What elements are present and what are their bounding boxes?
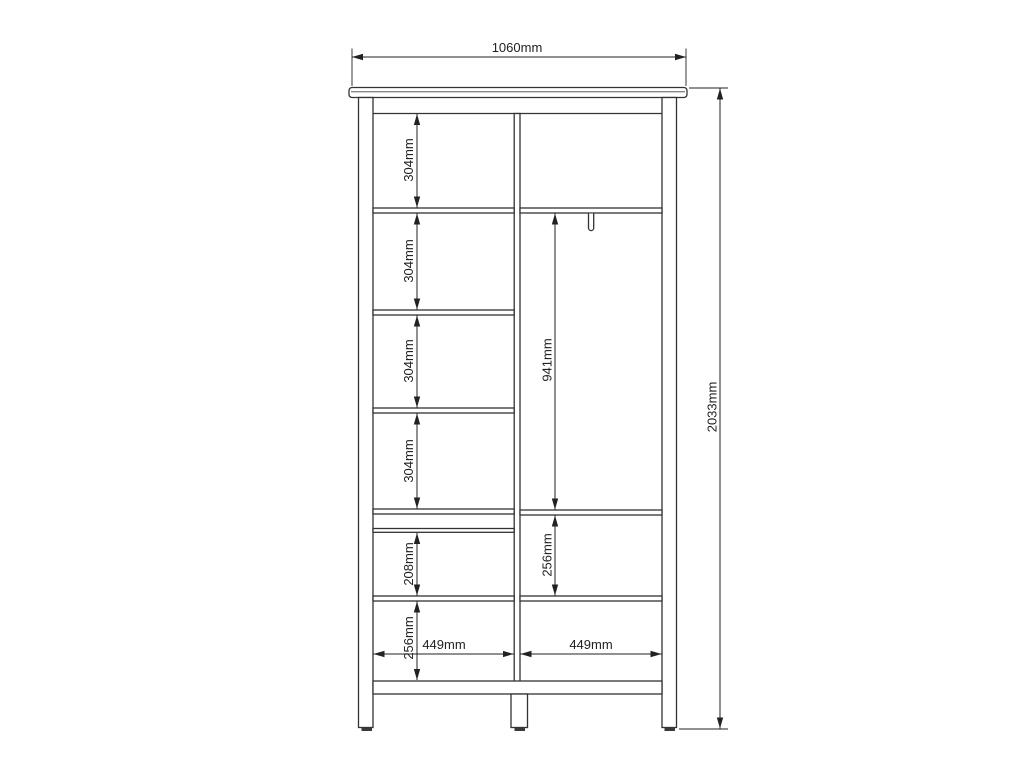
dimension-label-compartment-right: 449mm bbox=[569, 637, 612, 652]
right-side-panel bbox=[662, 98, 677, 728]
drawing-page: 1060mm 2033mm 304mm 304mm 304mm 304mm bbox=[0, 0, 1035, 776]
dimension-label-section-5: 208mm bbox=[401, 542, 416, 585]
wardrobe-structure bbox=[349, 88, 687, 732]
dimension-label-section-1: 304mm bbox=[401, 138, 416, 181]
dimension-label-overall-height: 2033mm bbox=[705, 382, 720, 433]
middle-leg bbox=[511, 694, 528, 728]
shelf-line bbox=[373, 529, 514, 533]
dimension-label-section-2: 304mm bbox=[401, 239, 416, 282]
shelf-line bbox=[520, 510, 662, 515]
shelf-line bbox=[373, 408, 514, 413]
shelf-line bbox=[373, 310, 514, 315]
dimension-left-sections: 304mm 304mm 304mm 304mm 208mm 256mm bbox=[401, 114, 417, 680]
center-divider bbox=[514, 114, 520, 682]
dimension-label-hanging-height: 941mm bbox=[540, 338, 555, 381]
dimension-label-section-6: 256mm bbox=[401, 616, 416, 659]
dimension-label-section-3: 304mm bbox=[401, 339, 416, 382]
shelf-line bbox=[373, 509, 514, 514]
shelf-line bbox=[373, 596, 514, 601]
wardrobe-dimension-drawing: 1060mm 2033mm 304mm 304mm 304mm 304mm bbox=[0, 0, 1035, 776]
dimension-overall-width: 1060mm bbox=[352, 40, 686, 86]
shelf-line bbox=[373, 208, 514, 213]
dimension-label-hanging-lower: 256mm bbox=[540, 533, 555, 576]
dimension-hanging-section: 941mm 256mm bbox=[540, 214, 556, 596]
dimension-overall-height: 2033mm bbox=[679, 88, 728, 729]
right-foot bbox=[665, 728, 676, 732]
shelf-line bbox=[520, 208, 662, 213]
dimension-label-overall-width: 1060mm bbox=[492, 40, 543, 55]
shelf-line bbox=[520, 596, 662, 601]
dimension-label-section-4: 304mm bbox=[401, 439, 416, 482]
left-foot bbox=[362, 728, 373, 732]
left-side-panel bbox=[359, 98, 374, 728]
cornice-top-panel bbox=[349, 88, 687, 98]
middle-foot bbox=[515, 728, 526, 732]
bottom-panel bbox=[373, 681, 662, 694]
hanging-rail-bracket bbox=[589, 214, 594, 231]
dimension-label-compartment-left: 449mm bbox=[422, 637, 465, 652]
